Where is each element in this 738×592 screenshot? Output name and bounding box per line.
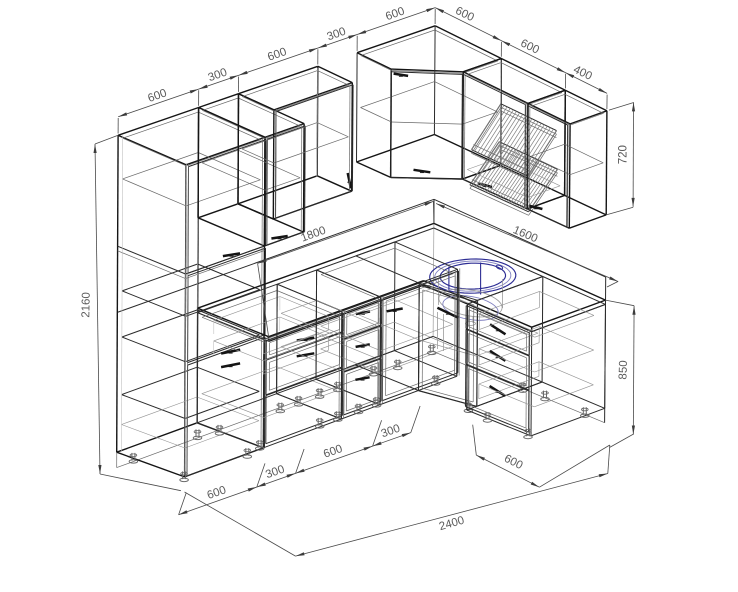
svg-text:850: 850 [617, 360, 630, 380]
svg-text:720: 720 [617, 145, 629, 164]
svg-text:2160: 2160 [80, 292, 92, 318]
